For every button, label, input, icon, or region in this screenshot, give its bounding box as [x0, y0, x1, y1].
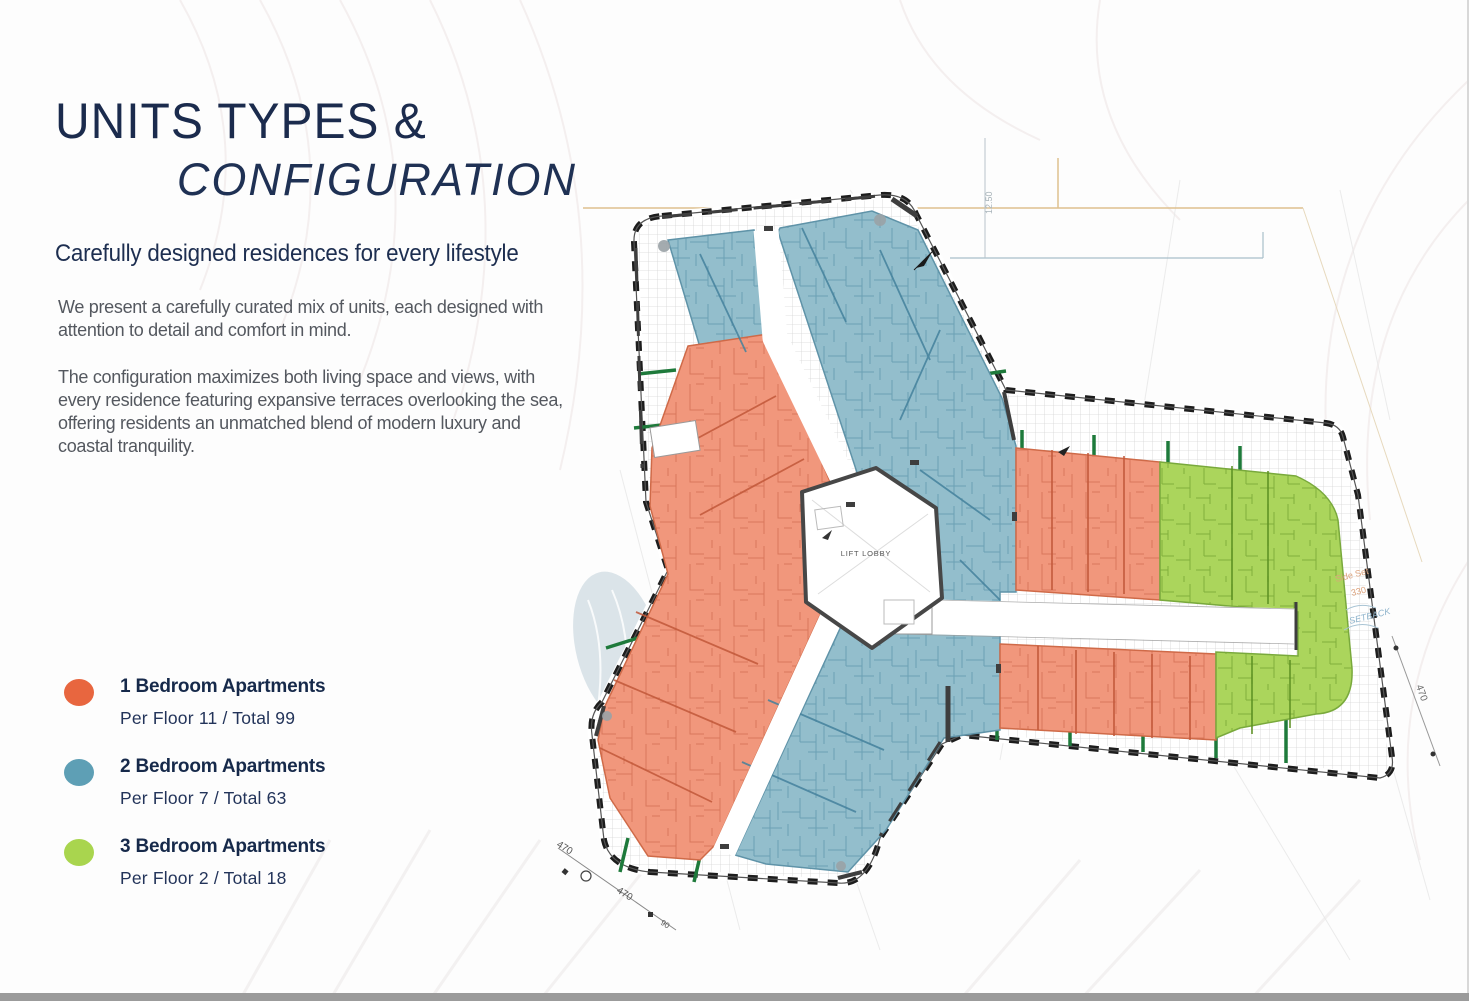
paragraph-intro: We present a carefully curated mix of un… — [58, 296, 578, 342]
info-panel: UNITS TYPES & CONFIGURATION Carefully de… — [0, 0, 600, 1001]
page-title: UNITS TYPES & CONFIGURATION — [55, 92, 577, 206]
legend-item-1-bedroom: 1 Bedroom Apartments Per Floor 11 / Tota… — [64, 676, 325, 729]
legend-label: 1 Bedroom Apartments — [120, 676, 325, 698]
title-line-1: UNITS TYPES & — [55, 92, 556, 150]
legend-item-3-bedroom: 3 Bedroom Apartments Per Floor 2 / Total… — [64, 836, 325, 889]
slide: 12.50 — [0, 0, 1469, 1001]
legend-item-2-bedroom: 2 Bedroom Apartments Per Floor 7 / Total… — [64, 756, 325, 809]
paragraph-configuration: The configuration maximizes both living … — [58, 366, 578, 458]
legend-stats: Per Floor 11 / Total 99 — [120, 708, 325, 729]
legend-label: 2 Bedroom Apartments — [120, 756, 325, 778]
legend-label: 3 Bedroom Apartments — [120, 836, 325, 858]
legend-dot-2-bedroom — [64, 759, 94, 786]
subtitle: Carefully designed residences for every … — [55, 240, 557, 268]
legend-dot-1-bedroom — [64, 679, 94, 706]
legend-stats: Per Floor 7 / Total 63 — [120, 788, 325, 809]
slide-bottom-bar — [0, 993, 1469, 1001]
title-line-2: CONFIGURATION — [55, 154, 577, 206]
lift-lobby-label: LIFT LOBBY — [841, 549, 891, 558]
legend-stats: Per Floor 2 / Total 18 — [120, 868, 325, 889]
survey-level-label: 12.50 — [984, 191, 994, 214]
legend-dot-3-bedroom — [64, 839, 94, 866]
